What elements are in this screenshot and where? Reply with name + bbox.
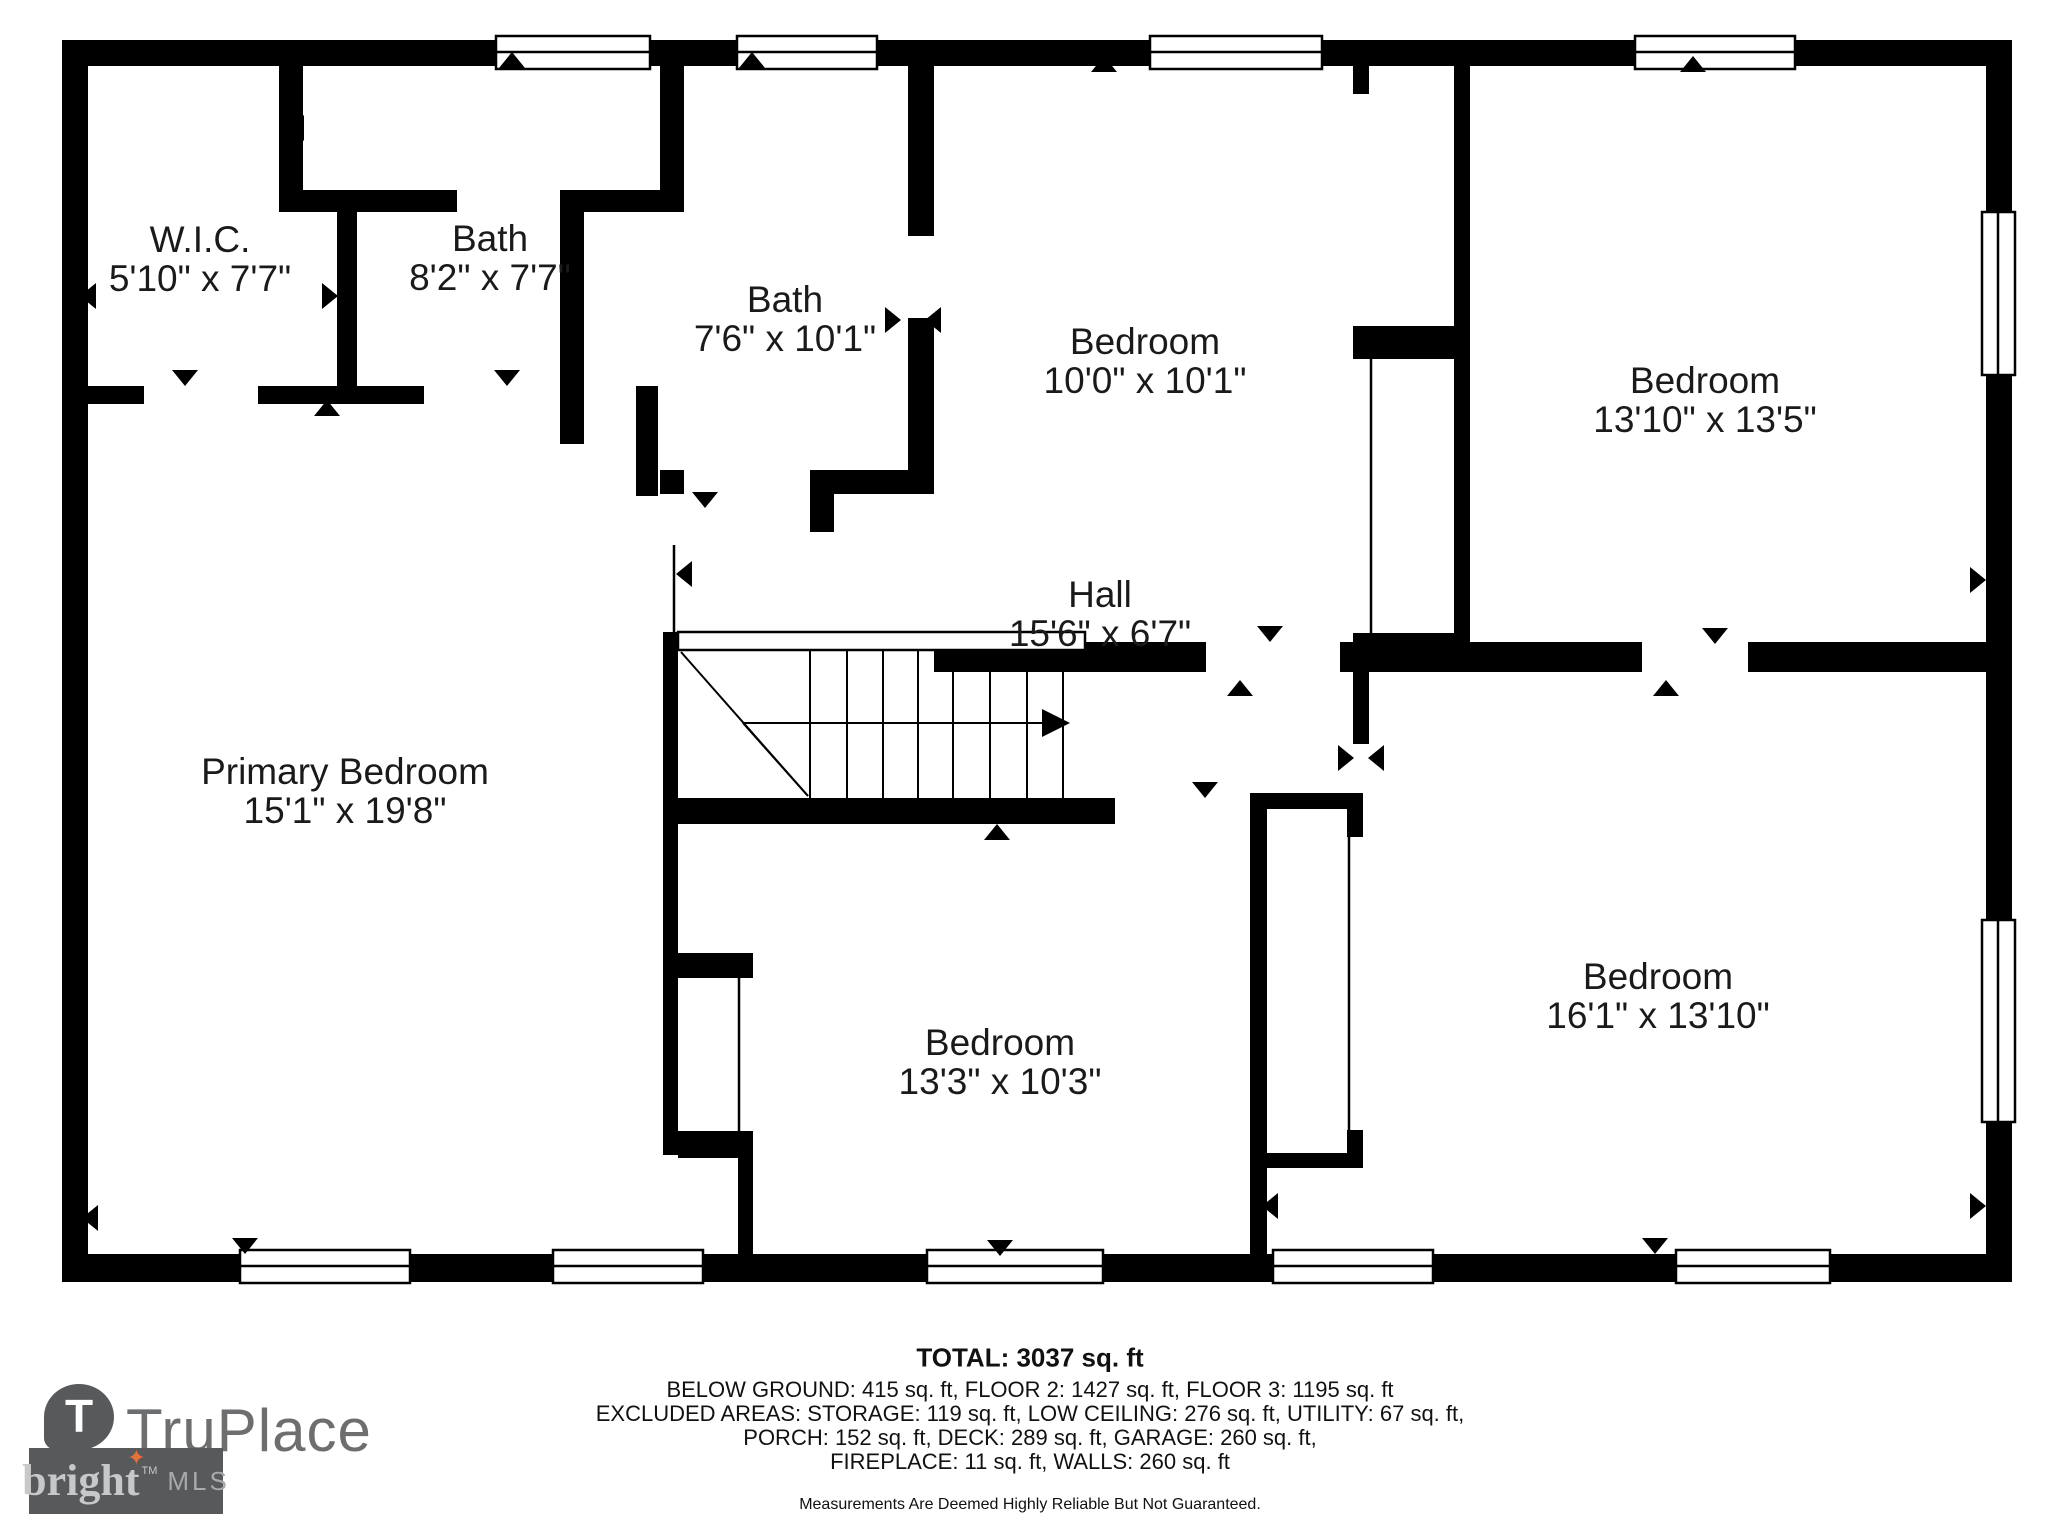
door-swing-marker-icon [1368, 745, 1384, 771]
room-name: Primary Bedroom [201, 752, 489, 791]
bright-mls-logo: bright✦ TM MLS [29, 1448, 223, 1514]
door-swing-marker-icon [322, 283, 338, 309]
door-swing-marker-icon [1192, 782, 1218, 798]
window [1635, 36, 1795, 69]
wall-segment [810, 470, 934, 494]
door-swing-marker-icon [885, 307, 901, 333]
door-swing-marker-icon [984, 824, 1010, 840]
door-swing-marker-icon [1702, 628, 1728, 644]
room-name: Bedroom [899, 1023, 1102, 1062]
room-name: Bath [409, 219, 571, 258]
door-swing-marker-icon [1653, 680, 1679, 696]
room-name: Bedroom [1044, 322, 1247, 361]
door-swing-marker-icon [1970, 1193, 1986, 1219]
room-dims: 13'3" x 10'3" [899, 1062, 1102, 1101]
wall-segment [1353, 672, 1369, 744]
bright-wordmark: bright [22, 1456, 139, 1505]
room-dims: 10'0" x 10'1" [1044, 361, 1247, 400]
wall-segment [738, 1158, 753, 1256]
room-label-bath-upper: Bath8'2" x 7'7" [409, 219, 571, 297]
door-swing-marker-icon [1970, 567, 1986, 593]
stair-run-diagonal [743, 723, 808, 796]
room-dims: 8'2" x 7'7" [409, 258, 571, 297]
room-dims: 15'6" x 6'7" [1009, 614, 1191, 653]
wall-segment [337, 212, 357, 388]
room-label-bedroom-south: Bedroom13'3" x 10'3" [899, 1023, 1102, 1101]
room-label-bedroom-ne: Bedroom13'10" x 13'5" [1593, 361, 1817, 439]
bright-mls-text: MLS [167, 1466, 229, 1497]
room-dims: 16'1" x 13'10" [1546, 996, 1770, 1035]
room-label-bedroom-center: Bedroom10'0" x 10'1" [1044, 322, 1247, 400]
room-label-bedroom-se: Bedroom16'1" x 13'10" [1546, 957, 1770, 1035]
wall-segment [1353, 633, 1470, 672]
window [1273, 1250, 1433, 1283]
door-swing-marker-icon [1227, 680, 1253, 696]
truplace-logo-icon: T [44, 1384, 114, 1450]
wall-segment [663, 824, 678, 1155]
wall-segment [908, 66, 934, 236]
stair-direction-arrow-icon [1042, 709, 1070, 737]
wall-segment [1470, 642, 1642, 672]
door-swing-marker-icon [1642, 1238, 1668, 1254]
window [240, 1250, 410, 1283]
room-label-wic: W.I.C.5'10" x 7'7" [109, 220, 291, 298]
floorplan-page: W.I.C.5'10" x 7'7" Bath8'2" x 7'7" Bath7… [0, 0, 2048, 1536]
door-swing-marker-icon [1338, 745, 1354, 771]
window [553, 1250, 703, 1283]
wall-segment [1748, 642, 1986, 672]
door-swing-marker-icon [676, 561, 692, 587]
window [1982, 920, 2015, 1122]
wall-segment [1347, 793, 1363, 837]
room-name: Bath [694, 280, 876, 319]
door-swing-marker-icon [494, 370, 520, 386]
wall-segment [660, 66, 684, 192]
room-name: W.I.C. [109, 220, 291, 259]
bright-star-icon: ✦ [127, 1447, 145, 1469]
room-name: Bedroom [1546, 957, 1770, 996]
wall-segment [678, 1131, 753, 1158]
wall-segment [62, 40, 88, 1282]
room-dims: 15'1" x 19'8" [201, 791, 489, 830]
wall-segment [1353, 326, 1469, 359]
window [1676, 1250, 1830, 1283]
wall-segment [636, 386, 658, 496]
door-swing-marker-icon [172, 370, 198, 386]
room-dims: 13'10" x 13'5" [1593, 400, 1817, 439]
wall-segment [660, 470, 684, 494]
total-area-text: TOTAL: 3037 sq. ft [0, 1343, 2048, 1374]
room-label-primary-bedroom: Primary Bedroom15'1" x 19'8" [201, 752, 489, 830]
door-swing-marker-icon [1257, 626, 1283, 642]
wall-segment [678, 953, 753, 978]
truplace-monogram: T [65, 1389, 93, 1443]
room-dims: 5'10" x 7'7" [109, 259, 291, 298]
window [927, 1250, 1103, 1283]
wall-segment [663, 798, 1115, 824]
bright-logo-text: bright✦ [22, 1459, 139, 1503]
wall-segment [279, 190, 457, 212]
wall-segment [908, 318, 934, 470]
room-name: Bedroom [1593, 361, 1817, 400]
room-dims: 7'6" x 10'1" [694, 319, 876, 358]
wall-segment [663, 632, 678, 798]
wall-segment [1250, 1153, 1363, 1168]
room-label-hall: Hall15'6" x 6'7" [1009, 575, 1191, 653]
disclaimer-text: Measurements Are Deemed Highly Reliable … [0, 1496, 2048, 1514]
wall-segment [86, 386, 144, 404]
room-name: Hall [1009, 575, 1191, 614]
wall-segment [258, 386, 424, 404]
room-label-bath-center: Bath7'6" x 10'1" [694, 280, 876, 358]
window [1982, 212, 2015, 375]
window [1150, 36, 1322, 69]
wall-segment [810, 494, 834, 532]
door-swing-marker-icon [692, 492, 718, 508]
wall-segment [1353, 66, 1369, 94]
wall-segment [1250, 793, 1267, 1256]
wall-segment [1454, 66, 1470, 652]
